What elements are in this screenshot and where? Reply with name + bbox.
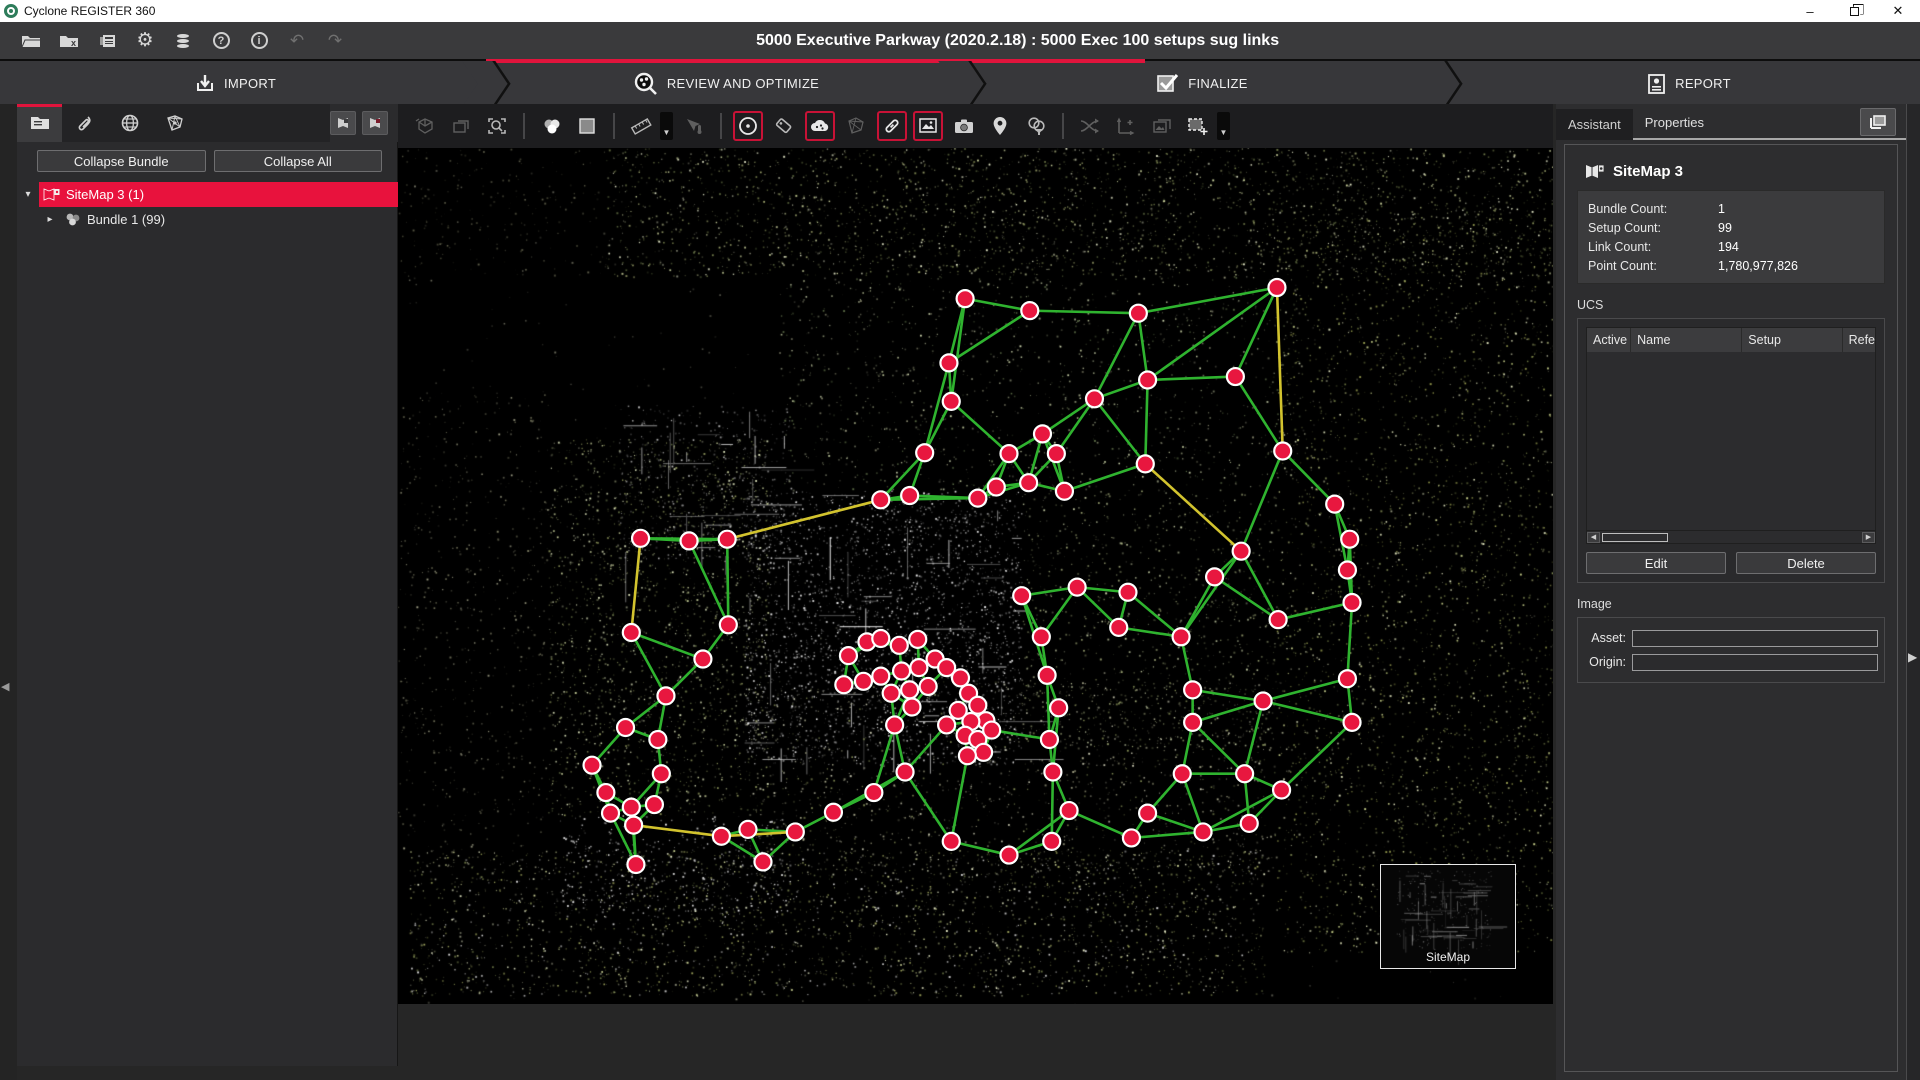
setup-node[interactable] <box>901 681 918 698</box>
collapse-bundle-button[interactable]: Collapse Bundle <box>37 150 206 172</box>
pick-point-button[interactable] <box>679 111 709 141</box>
ruler-icon <box>630 117 652 135</box>
setup-node[interactable] <box>1044 764 1061 781</box>
origin-field-row: Origin: <box>1584 650 1878 674</box>
ucs-section-label: UCS <box>1577 298 1885 312</box>
setup-node[interactable] <box>988 478 1005 495</box>
restore-icon <box>1850 7 1859 16</box>
setup-node[interactable] <box>694 651 711 668</box>
toolbar-separator <box>720 113 722 139</box>
setup-node[interactable] <box>584 757 601 774</box>
setup-node[interactable] <box>969 490 986 507</box>
setup-node[interactable] <box>920 678 937 695</box>
axes-plus-icon <box>1116 116 1136 136</box>
setup-node[interactable] <box>883 685 900 702</box>
right-edge-strip: ▶ <box>1906 104 1920 1080</box>
camera-icon <box>953 117 975 135</box>
scroll-right-arrow[interactable]: ▶ <box>1862 532 1875 543</box>
title-bar: Cyclone REGISTER 360 – ✕ <box>0 0 1920 22</box>
geotag-button[interactable] <box>985 111 1015 141</box>
setup-node[interactable] <box>1241 815 1258 832</box>
stat-point-count: Point Count:1,780,977,826 <box>1588 256 1874 275</box>
setup-node[interactable] <box>840 647 857 664</box>
right-panel-tabs: Assistant Properties <box>1556 104 1906 140</box>
asset-input[interactable] <box>1632 630 1878 647</box>
zoom-region-button[interactable] <box>482 111 512 141</box>
setup-node[interactable] <box>1174 765 1191 782</box>
setup-node[interactable] <box>1268 279 1285 296</box>
setup-node[interactable] <box>754 853 771 870</box>
setup-node[interactable] <box>943 393 960 410</box>
link-icon <box>882 116 902 136</box>
redo-icon: ↷ <box>328 32 342 49</box>
ucs-section: Active Name Setup Refe ◀ ▶ Edit Delete <box>1577 318 1885 583</box>
setup-node[interactable] <box>1086 390 1103 407</box>
project-details-button[interactable] <box>90 26 124 56</box>
background-color-button[interactable] <box>572 111 602 141</box>
image-section-label: Image <box>1577 597 1885 611</box>
setup-node[interactable] <box>872 630 889 647</box>
setup-node[interactable] <box>1000 847 1017 864</box>
database-icon <box>175 33 191 49</box>
setup-node[interactable] <box>713 828 730 845</box>
stat-link-count: Link Count:194 <box>1588 237 1874 256</box>
setup-node[interactable] <box>627 856 644 873</box>
toggle-links-map-button[interactable] <box>841 111 871 141</box>
setup-node[interactable] <box>1274 443 1291 460</box>
setup-node[interactable] <box>1139 805 1156 822</box>
ucs-table[interactable]: Active Name Setup Refe ◀ ▶ <box>1586 327 1876 544</box>
setup-node[interactable] <box>623 799 640 816</box>
setup-node[interactable] <box>897 764 914 781</box>
link-network-icon <box>846 116 866 136</box>
setup-node[interactable] <box>1020 474 1037 491</box>
tab-separator <box>470 61 506 106</box>
setup-node[interactable] <box>855 673 872 690</box>
setup-node[interactable] <box>739 821 756 838</box>
review-optimize-icon <box>633 71 659 97</box>
setup-node[interactable] <box>1034 425 1051 442</box>
setup-node[interactable] <box>1184 681 1201 698</box>
setup-node[interactable] <box>959 747 976 764</box>
project-title: 5000 Executive Parkway (2020.2.18) : 500… <box>756 32 1279 50</box>
stat-bundle-count: Bundle Count:1 <box>1588 199 1874 218</box>
ucs-table-header: Active Name Setup Refe <box>1587 328 1875 352</box>
setup-node[interactable] <box>916 444 933 461</box>
setup-node[interactable] <box>787 823 804 840</box>
setup-node[interactable] <box>975 744 992 761</box>
setup-node[interactable] <box>886 716 903 733</box>
setup-node[interactable] <box>952 669 969 686</box>
setup-node[interactable] <box>1233 543 1250 560</box>
project-panel: Collapse Bundle Collapse All ▾ SiteMap 3… <box>17 104 398 1066</box>
sitemap-view-button-1[interactable] <box>330 111 356 135</box>
sitemap-view-buttons <box>330 104 398 142</box>
setup-node[interactable] <box>1048 445 1065 462</box>
setup-node[interactable] <box>719 531 736 548</box>
expand-arrow-icon[interactable]: ▸ <box>39 207 61 232</box>
tab-finalize[interactable]: FINALIZE <box>982 61 1422 106</box>
setup-node[interactable] <box>1130 305 1147 322</box>
minimap-label: SiteMap <box>1381 950 1515 964</box>
stacked-images-icon <box>1152 117 1172 135</box>
panel-layout-icon <box>1869 114 1887 130</box>
setup-node[interactable] <box>1206 568 1223 585</box>
asset-label: Asset: <box>1584 631 1632 645</box>
close-folder-icon: x <box>59 33 79 49</box>
redo-button[interactable]: ↷ <box>318 26 352 56</box>
minimize-button[interactable]: – <box>1788 0 1832 22</box>
setup-node[interactable] <box>891 637 908 654</box>
setup-node[interactable] <box>943 833 960 850</box>
filter-setups-button[interactable] <box>1021 111 1051 141</box>
storage-button[interactable] <box>166 26 200 56</box>
setup-node[interactable] <box>1273 782 1290 799</box>
sitemap-stats: Bundle Count:1 Setup Count:99 Link Count… <box>1577 190 1885 284</box>
project-explorer-icon <box>30 115 50 131</box>
setup-node[interactable] <box>1110 619 1127 636</box>
tab-assistant[interactable]: Assistant <box>1556 109 1633 140</box>
setup-node[interactable] <box>597 784 614 801</box>
measure-button[interactable] <box>626 111 656 141</box>
project-panel-tabs <box>17 104 398 142</box>
view-orientation-button[interactable] <box>410 111 440 141</box>
setup-node[interactable] <box>950 702 967 719</box>
setup-node[interactable] <box>1043 833 1060 850</box>
setup-node[interactable] <box>1050 699 1067 716</box>
auto-link-button[interactable] <box>1075 111 1105 141</box>
setup-node[interactable] <box>1341 531 1358 548</box>
setup-node[interactable] <box>1041 731 1058 748</box>
color-circles-icon <box>541 117 561 135</box>
origin-input[interactable] <box>1632 654 1878 671</box>
undo-button[interactable]: ↶ <box>280 26 314 56</box>
project-details-icon <box>98 33 116 49</box>
setup-node[interactable] <box>1061 802 1078 819</box>
delete-button[interactable]: Delete <box>1736 552 1876 574</box>
gear-icon: ⚙ <box>136 29 153 52</box>
collapse-all-button[interactable]: Collapse All <box>214 150 383 172</box>
toggle-pointcloud-button[interactable] <box>805 111 835 141</box>
setup-node[interactable] <box>1056 483 1073 500</box>
toggle-labels-button[interactable] <box>769 111 799 141</box>
setup-node[interactable] <box>938 716 955 733</box>
setup-node[interactable] <box>646 796 663 813</box>
sitemap-viewport[interactable]: SiteMap <box>398 148 1553 1004</box>
viewport-toolbar: ▼ <box>398 104 1553 148</box>
tab-sitemap-network[interactable] <box>152 104 197 142</box>
setup-node[interactable] <box>1021 302 1038 319</box>
setup-circle-icon <box>737 115 759 137</box>
setup-node[interactable] <box>1139 371 1156 388</box>
setup-node[interactable] <box>720 616 737 633</box>
setup-node[interactable] <box>681 532 698 549</box>
zoom-region-icon <box>487 117 507 135</box>
add-ucs-button[interactable] <box>1111 111 1141 141</box>
setup-node[interactable] <box>893 663 910 680</box>
tab-separator <box>1422 61 1458 106</box>
map-flag-icon <box>368 116 382 130</box>
col-setup: Setup <box>1742 328 1842 352</box>
pano-images-button[interactable] <box>1147 111 1177 141</box>
fit-view-button[interactable] <box>446 111 476 141</box>
app-logo-icon <box>4 4 18 18</box>
tab-attachments[interactable] <box>62 104 107 142</box>
setup-node[interactable] <box>1270 611 1287 628</box>
import-icon <box>194 73 216 95</box>
finalize-icon <box>1156 72 1180 96</box>
setup-node[interactable] <box>983 722 1000 739</box>
collapse-left-panel-arrow[interactable]: ◀ <box>1 680 9 693</box>
setup-node[interactable] <box>1339 562 1356 579</box>
setup-node[interactable] <box>1344 594 1361 611</box>
setup-node[interactable] <box>1000 445 1017 462</box>
setup-node[interactable] <box>617 719 634 736</box>
point-cloud-icon <box>809 117 831 135</box>
setup-node[interactable] <box>1344 714 1361 731</box>
setup-node[interactable] <box>657 687 674 704</box>
measure-dropdown[interactable]: ▼ <box>660 112 673 140</box>
overlap-rectangles-icon <box>452 118 470 134</box>
screenshot-button[interactable] <box>949 111 979 141</box>
help-icon: ? <box>213 32 230 49</box>
report-icon <box>1647 73 1667 95</box>
tab-review-and-optimize[interactable]: REVIEW AND OPTIMIZE <box>506 61 946 106</box>
setup-node[interactable] <box>872 668 889 685</box>
image-section: Asset: Origin: <box>1577 617 1885 683</box>
setup-node[interactable] <box>1255 692 1272 709</box>
setup-node[interactable] <box>1236 765 1253 782</box>
svg-text:x: x <box>71 38 76 48</box>
setup-node[interactable] <box>910 659 927 676</box>
expand-right-panel-arrow[interactable]: ▶ <box>1908 650 1917 664</box>
open-folder-icon <box>21 33 41 49</box>
layout-toggle-button[interactable] <box>1860 108 1896 136</box>
selection-dropdown[interactable]: ▼ <box>1217 112 1230 140</box>
setup-node[interactable] <box>1069 579 1086 596</box>
setup-node[interactable] <box>835 676 852 693</box>
toggle-link-lines-button[interactable] <box>877 111 907 141</box>
collapse-arrow-icon[interactable]: ▾ <box>17 182 39 207</box>
selection-title: SiteMap 3 <box>1585 163 1885 180</box>
map-pin-icon <box>992 116 1008 136</box>
scroll-thumb[interactable] <box>1602 533 1668 542</box>
col-reference: Refe <box>1843 328 1875 352</box>
setup-node[interactable] <box>957 290 974 307</box>
setup-node[interactable] <box>1039 667 1056 684</box>
setup-node[interactable] <box>1137 455 1154 472</box>
undo-icon: ↶ <box>290 32 304 49</box>
toggle-images-button[interactable] <box>913 111 943 141</box>
setup-node[interactable] <box>1173 628 1190 645</box>
main-toolbar: x ⚙ ? i ↶ ↷ 5000 Executive Parkway (2020… <box>0 22 1920 59</box>
settings-button[interactable]: ⚙ <box>128 26 162 56</box>
setup-node[interactable] <box>632 530 649 547</box>
cursor-probe-icon <box>684 117 704 135</box>
toolbar-separator <box>1062 113 1064 139</box>
setup-node[interactable] <box>1326 496 1343 513</box>
close-button[interactable]: ✕ <box>1876 0 1920 22</box>
setup-node[interactable] <box>909 631 926 648</box>
close-project-button[interactable]: x <box>52 26 86 56</box>
properties-panel: Assistant Properties SiteMap 3 Bundle Co… <box>1556 104 1906 1080</box>
setup-node[interactable] <box>872 491 889 508</box>
ucs-hscrollbar[interactable]: ◀ ▶ <box>1587 530 1875 543</box>
setup-node[interactable] <box>602 805 619 822</box>
col-name: Name <box>1631 328 1742 352</box>
setup-node[interactable] <box>1339 670 1356 687</box>
sitemap-icon <box>43 187 60 202</box>
window-title: Cyclone REGISTER 360 <box>24 4 155 18</box>
tree-item-bundle[interactable]: ▸ Bundle 1 (99) <box>17 207 398 232</box>
setup-node[interactable] <box>865 784 882 801</box>
workflow-bar: IMPORT REVIEW AND OPTIMIZE FINALIZE REPO… <box>0 59 1920 104</box>
toggle-setups-button[interactable] <box>733 111 763 141</box>
ucs-table-body[interactable] <box>1587 352 1875 530</box>
properties-content: SiteMap 3 Bundle Count:1 Setup Count:99 … <box>1564 144 1898 1072</box>
setup-node[interactable] <box>903 698 920 715</box>
setup-node[interactable] <box>825 804 842 821</box>
setup-node[interactable] <box>1013 587 1030 604</box>
marquee-select-icon <box>1187 116 1209 136</box>
setup-node[interactable] <box>625 817 642 834</box>
network-map-icon <box>166 114 184 132</box>
tab-geo[interactable] <box>107 104 152 142</box>
sitemap-icon <box>1585 163 1605 180</box>
shuffle-icon <box>1079 117 1101 135</box>
filter-circles-icon <box>1026 116 1046 136</box>
scroll-left-arrow[interactable]: ◀ <box>1587 532 1600 543</box>
cube-icon <box>415 117 435 135</box>
tab-properties[interactable]: Properties <box>1633 107 1716 140</box>
info-icon: i <box>251 32 268 49</box>
tag-icon <box>774 116 794 136</box>
setup-node[interactable] <box>1184 714 1201 731</box>
edit-button[interactable]: Edit <box>1586 552 1726 574</box>
paperclip-icon <box>77 114 93 132</box>
asset-field-row: Asset: <box>1584 626 1878 650</box>
setup-node[interactable] <box>623 624 640 641</box>
left-edge-strip: ◀ <box>0 104 17 1080</box>
setup-node[interactable] <box>940 354 957 371</box>
stat-setup-count: Setup Count:99 <box>1588 218 1874 237</box>
open-project-button[interactable] <box>14 26 48 56</box>
setup-node[interactable] <box>1119 584 1136 601</box>
tab-import[interactable]: IMPORT <box>0 61 470 106</box>
setup-node[interactable] <box>653 765 670 782</box>
about-button[interactable]: i <box>242 26 276 56</box>
restore-button[interactable] <box>1832 0 1876 22</box>
origin-label: Origin: <box>1584 655 1632 669</box>
map-flag-icon <box>336 116 350 130</box>
tab-project-explorer[interactable] <box>17 104 62 142</box>
setup-node[interactable] <box>901 487 918 504</box>
setup-node[interactable] <box>969 697 986 714</box>
sitemap-view-button-2[interactable] <box>362 111 388 135</box>
setup-node[interactable] <box>1123 829 1140 846</box>
setup-node[interactable] <box>1227 368 1244 385</box>
point-color-mode-button[interactable] <box>536 111 566 141</box>
image-icon <box>918 117 938 135</box>
col-active: Active <box>1587 328 1631 352</box>
setup-node[interactable] <box>649 731 666 748</box>
bundle-icon <box>65 212 81 227</box>
setup-node[interactable] <box>1033 628 1050 645</box>
square-swatch-icon <box>578 117 596 135</box>
setup-node[interactable] <box>1195 823 1212 840</box>
toolbar-separator <box>613 113 615 139</box>
tab-separator <box>946 61 982 106</box>
minimap[interactable]: SiteMap <box>1380 864 1516 969</box>
tree-item-sitemap[interactable]: ▾ SiteMap 3 (1) <box>17 182 398 207</box>
toolbar-separator <box>523 113 525 139</box>
help-button[interactable]: ? <box>204 26 238 56</box>
globe-icon <box>121 114 139 132</box>
project-tree: ▾ SiteMap 3 (1) ▸ Bundle 1 (99) <box>17 182 398 232</box>
application-window: Cyclone REGISTER 360 – ✕ x ⚙ ? i ↶ ↷ 500… <box>0 0 1920 1080</box>
selection-marquee-button[interactable] <box>1183 111 1213 141</box>
tab-report[interactable]: REPORT <box>1458 61 1920 106</box>
